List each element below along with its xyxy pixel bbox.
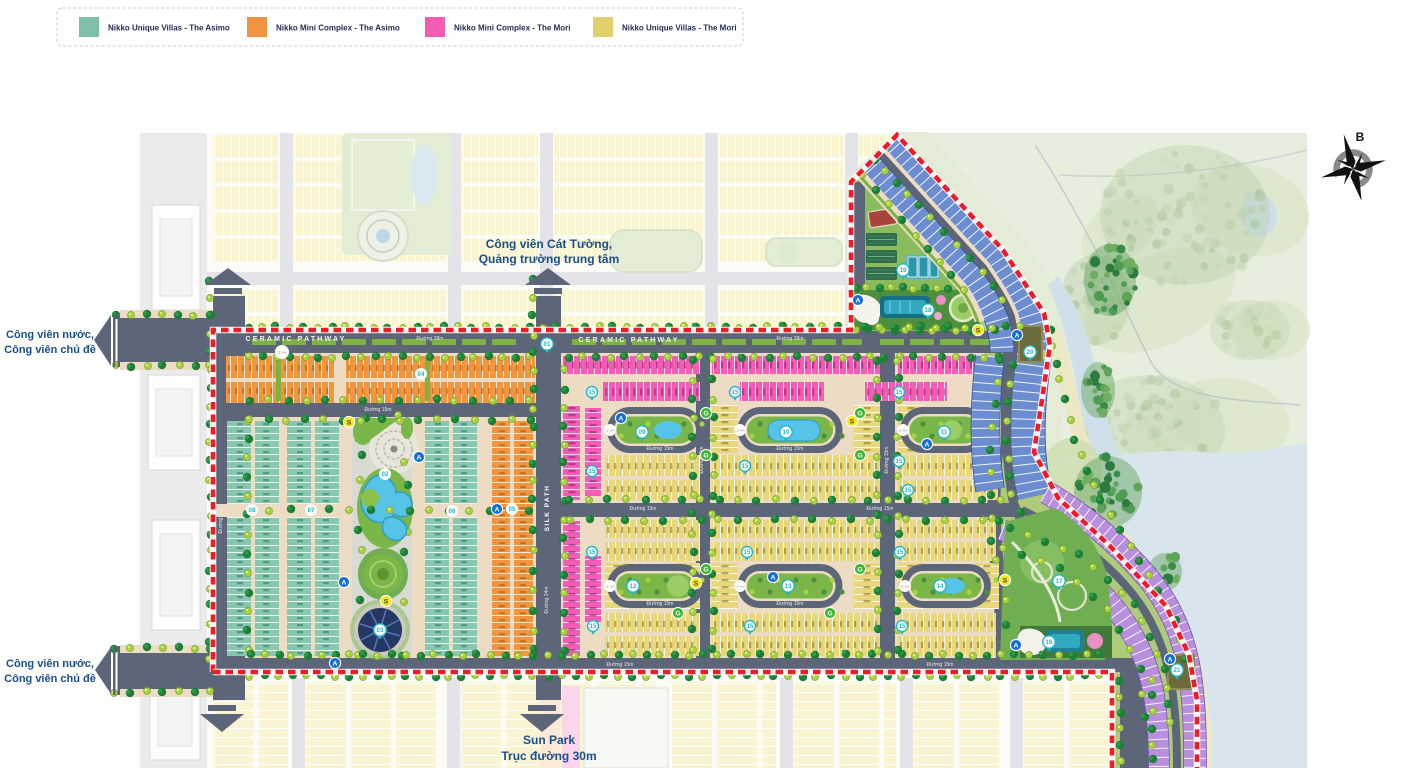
svg-text:15: 15 [896, 458, 903, 465]
svg-text:G: G [675, 610, 680, 617]
svg-text:Đường 15m: Đường 15m [867, 506, 894, 512]
svg-text:01: 01 [544, 341, 551, 348]
svg-text:G: G [703, 566, 708, 573]
svg-text:LE MAI: LE MAI [605, 429, 615, 433]
svg-text:Công viên nước,: Công viên nước, [6, 658, 94, 670]
svg-text:S: S [347, 419, 352, 426]
svg-text:Đường 20m: Đường 20m [218, 507, 224, 534]
svg-text:15: 15 [905, 487, 912, 494]
svg-text:03: 03 [377, 627, 384, 634]
svg-text:Đường 15m: Đường 15m [777, 601, 804, 607]
svg-text:15: 15 [589, 468, 596, 475]
svg-text:02: 02 [382, 471, 389, 478]
svg-text:G: G [703, 452, 708, 459]
svg-text:12: 12 [630, 583, 637, 590]
svg-text:Công viên chủ đề: Công viên chủ đề [4, 673, 96, 685]
svg-text:15: 15 [589, 549, 596, 556]
svg-text:Đường 15m: Đường 15m [365, 407, 392, 413]
svg-text:Nikko Unique Villas - The Asim: Nikko Unique Villas - The Asimo [108, 24, 230, 33]
svg-text:A: A [333, 660, 338, 667]
svg-text:15: 15 [747, 623, 754, 630]
svg-text:S: S [976, 327, 981, 334]
svg-text:07: 07 [308, 507, 315, 514]
svg-text:Sun Park: Sun Park [523, 733, 575, 747]
svg-text:20: 20 [1027, 349, 1034, 356]
svg-text:A: A [771, 574, 776, 581]
svg-text:Đường 28m: Đường 28m [417, 336, 444, 342]
svg-text:18: 18 [925, 307, 932, 314]
svg-text:S: S [1003, 577, 1008, 584]
svg-text:S: S [850, 418, 855, 425]
svg-text:A: A [1015, 332, 1020, 339]
svg-text:Công viên nước,: Công viên nước, [6, 329, 94, 341]
svg-text:A: A [417, 454, 422, 461]
svg-text:LE MAI: LE MAI [900, 585, 910, 589]
svg-text:Đường 15m: Đường 15m [927, 662, 954, 668]
svg-text:15: 15 [589, 389, 596, 396]
svg-text:Nikko Unique Villas - The Mori: Nikko Unique Villas - The Mori [622, 24, 737, 33]
svg-text:CERAMIC PATHWAY: CERAMIC PATHWAY [246, 336, 347, 343]
svg-text:LE MAI: LE MAI [735, 585, 745, 589]
svg-text:A: A [1168, 656, 1173, 663]
svg-text:A: A [1014, 642, 1019, 649]
svg-text:08: 08 [249, 507, 256, 514]
svg-text:05: 05 [509, 506, 516, 513]
svg-text:21: 21 [1174, 667, 1181, 674]
svg-text:LE MAI: LE MAI [735, 429, 745, 433]
svg-text:A: A [495, 506, 500, 513]
svg-text:16: 16 [1046, 639, 1053, 646]
svg-text:10: 10 [783, 429, 790, 436]
svg-text:Trục đường 30m: Trục đường 30m [501, 749, 596, 763]
svg-text:S: S [384, 598, 389, 605]
svg-text:A: A [925, 441, 930, 448]
svg-text:LE MAI: LE MAI [605, 585, 615, 589]
svg-text:13: 13 [785, 583, 792, 590]
svg-text:G: G [857, 452, 862, 459]
svg-text:Đường 15m: Đường 15m [647, 601, 674, 607]
svg-text:15: 15 [744, 549, 751, 556]
svg-text:15: 15 [899, 623, 906, 630]
svg-text:Công viên chủ đề: Công viên chủ đề [4, 344, 96, 356]
svg-text:Đường 15m: Đường 15m [607, 662, 634, 668]
svg-text:Đường 24m: Đường 24m [544, 587, 550, 614]
svg-text:G: G [827, 610, 832, 617]
svg-text:LÊ MAI: LÊ MAI [277, 350, 287, 355]
svg-text:Đường 15m: Đường 15m [777, 446, 804, 452]
svg-text:15: 15 [742, 463, 749, 470]
svg-text:Công viên Cát Tường,: Công viên Cát Tường, [486, 237, 613, 251]
svg-text:G: G [703, 410, 708, 417]
svg-text:A: A [619, 415, 624, 422]
svg-text:17: 17 [1056, 578, 1063, 585]
svg-text:15: 15 [732, 389, 739, 396]
svg-text:A: A [856, 297, 861, 304]
svg-text:15: 15 [897, 549, 904, 556]
svg-text:B: B [1356, 130, 1365, 144]
svg-text:S: S [694, 580, 699, 587]
svg-text:11: 11 [941, 429, 948, 436]
svg-text:Nikko Mini Complex - The Asimo: Nikko Mini Complex - The Asimo [276, 24, 400, 33]
svg-text:Đường 15m: Đường 15m [884, 447, 890, 474]
svg-text:Nikko Mini Complex - The Mori: Nikko Mini Complex - The Mori [454, 24, 570, 33]
svg-text:G: G [857, 410, 862, 417]
svg-text:Đường 28m: Đường 28m [777, 336, 804, 342]
svg-text:19: 19 [900, 267, 907, 274]
svg-text:15: 15 [590, 623, 597, 630]
svg-text:04: 04 [418, 371, 425, 378]
svg-text:Đường 15m: Đường 15m [630, 506, 657, 512]
svg-text:SILK PATH: SILK PATH [544, 485, 551, 532]
svg-text:A: A [342, 579, 347, 586]
svg-text:09: 09 [639, 429, 646, 436]
svg-text:LE MAI: LE MAI [898, 429, 908, 433]
svg-text:G: G [857, 566, 862, 573]
svg-text:CERAMIC PATHWAY: CERAMIC PATHWAY [579, 337, 680, 344]
svg-text:15: 15 [896, 389, 903, 396]
svg-text:14: 14 [937, 583, 944, 590]
svg-text:06: 06 [449, 508, 456, 515]
svg-text:Đường 15m: Đường 15m [647, 446, 674, 452]
svg-text:Quảng trường trung tâm: Quảng trường trung tâm [479, 252, 620, 266]
